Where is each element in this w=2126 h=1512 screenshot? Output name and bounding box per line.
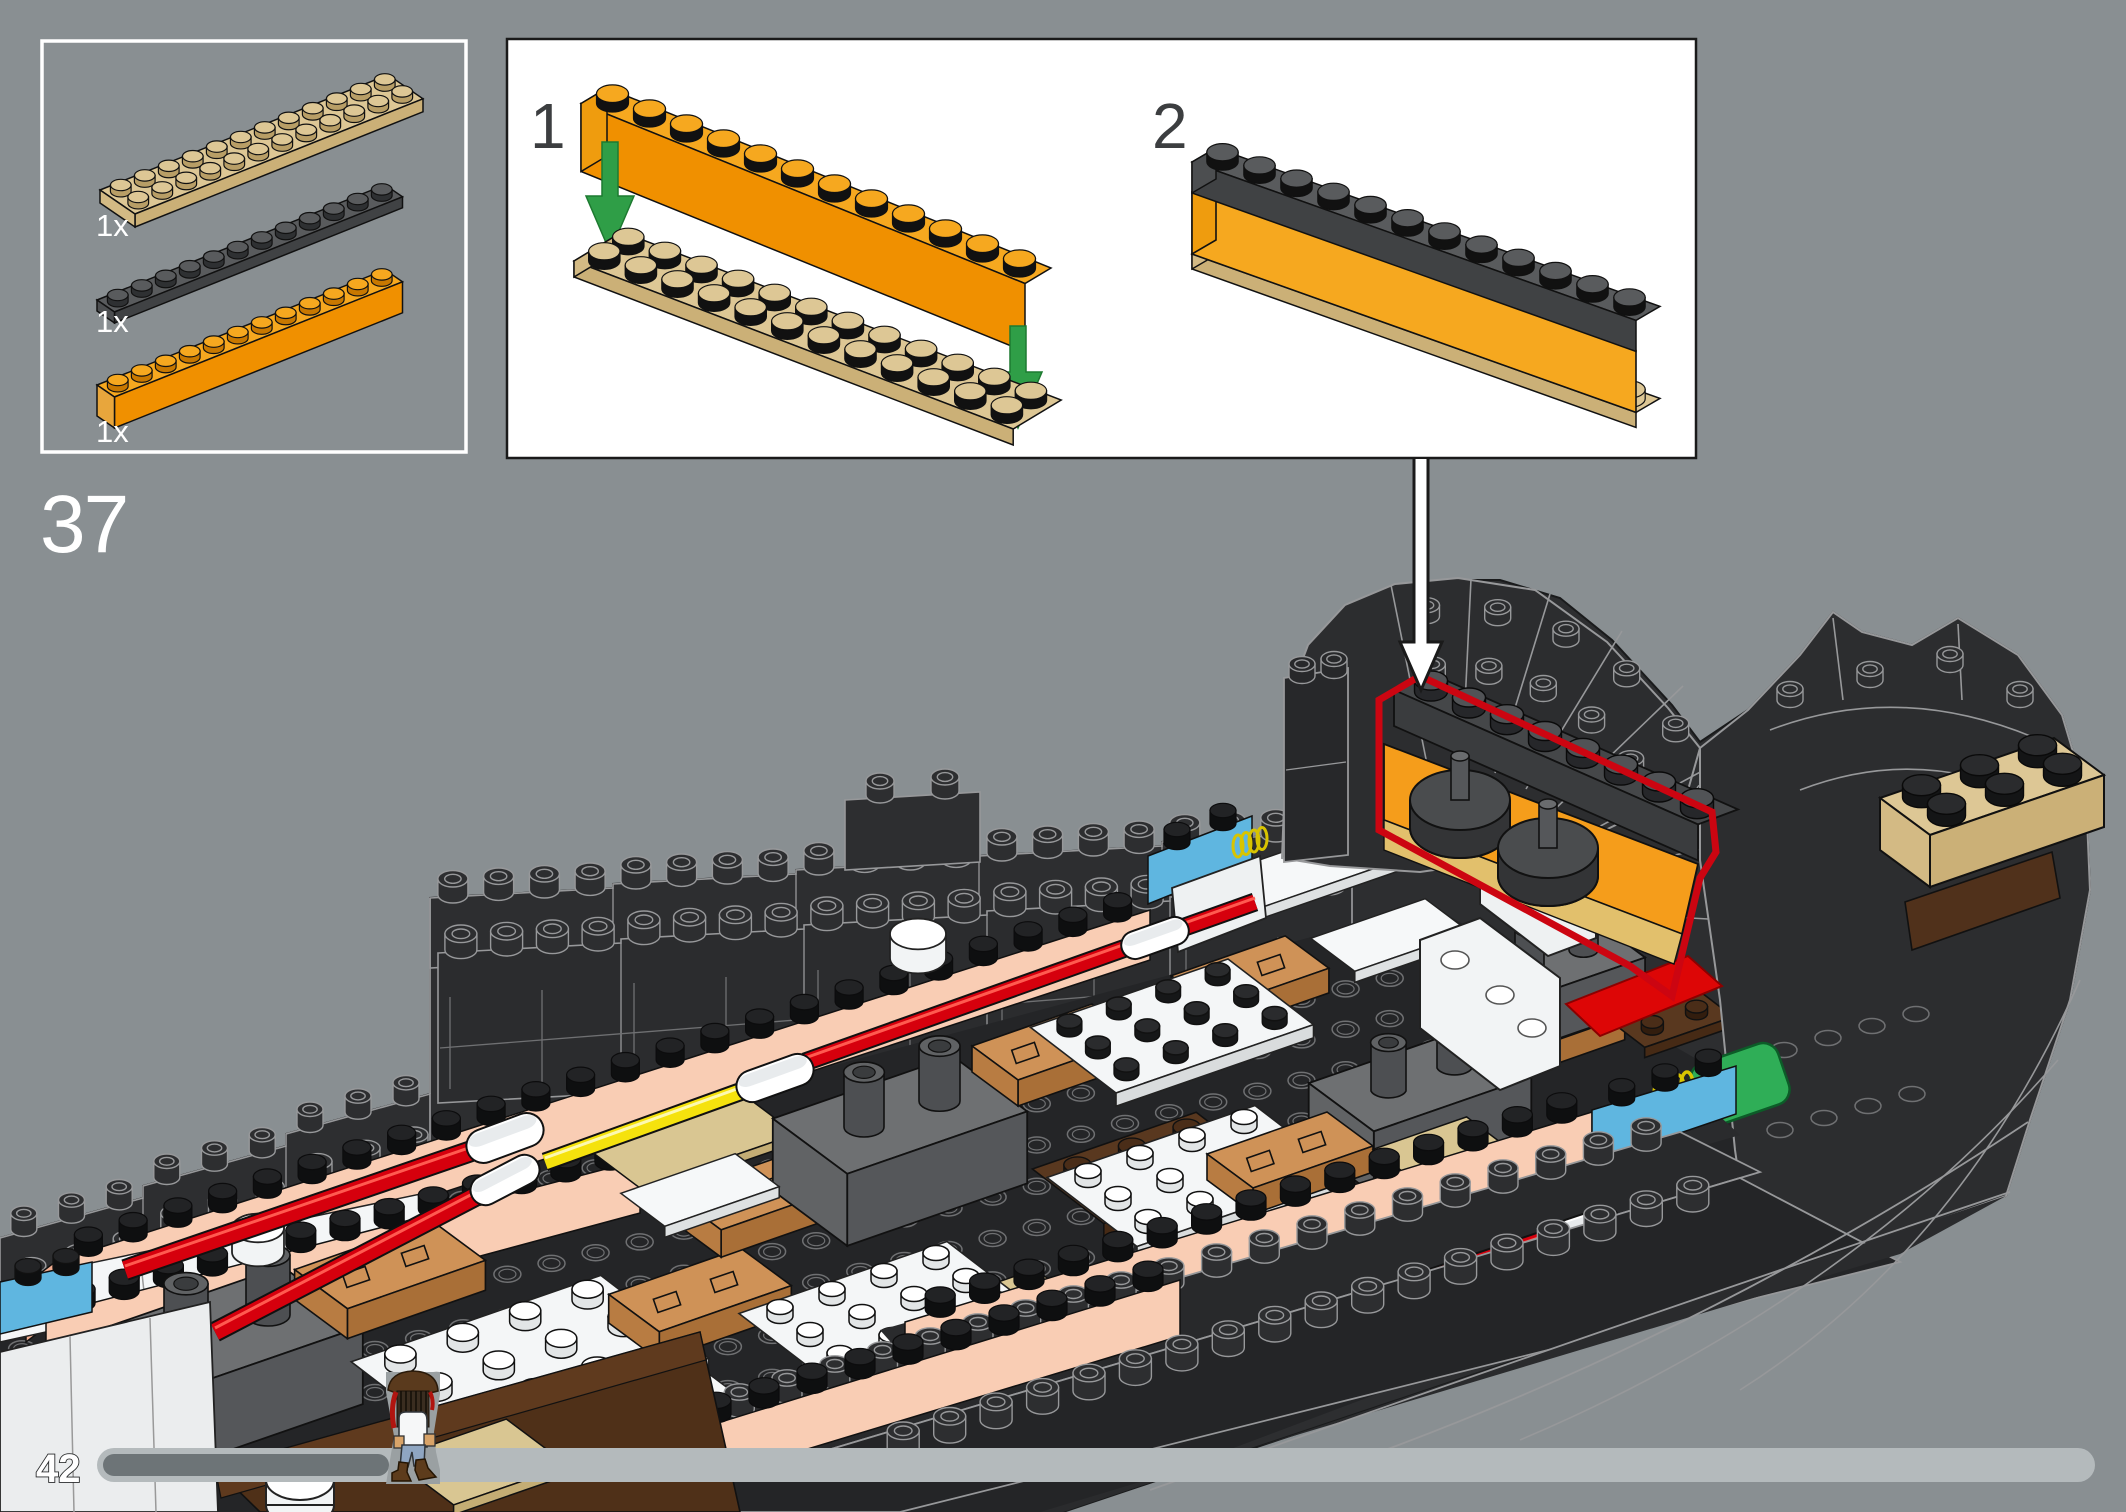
svg-text:1x: 1x bbox=[96, 304, 129, 339]
svg-text:37: 37 bbox=[40, 479, 127, 570]
svg-text:42: 42 bbox=[36, 1447, 81, 1491]
svg-text:1: 1 bbox=[530, 90, 566, 162]
svg-text:1x: 1x bbox=[96, 208, 129, 243]
svg-text:2: 2 bbox=[1152, 90, 1188, 162]
svg-text:1x: 1x bbox=[96, 414, 129, 449]
